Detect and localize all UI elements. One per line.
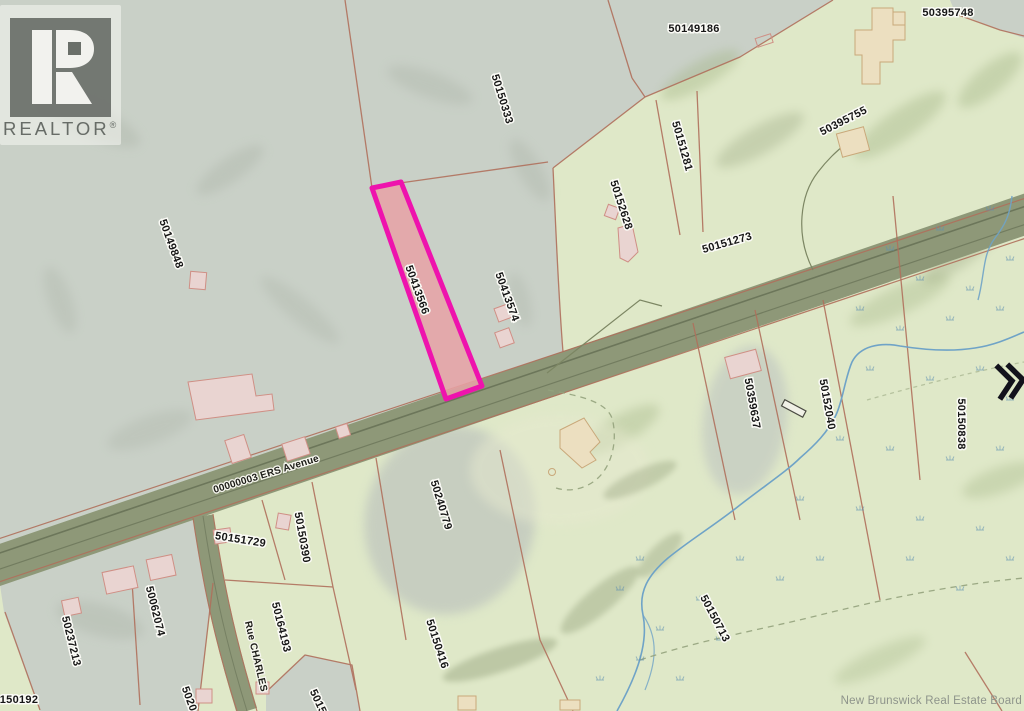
parcel-label-150192: 150192 xyxy=(0,694,38,706)
realtor-logo-icon xyxy=(10,18,111,117)
parcel-label-50150838: 50150838 xyxy=(955,398,967,449)
realtor-wordmark: REALTOR® xyxy=(3,118,121,140)
map-canvas[interactable]: 5015033350149186503957485039575550151281… xyxy=(0,0,1024,711)
map-image: 5015033350149186503957485039575550151281… xyxy=(0,0,1024,711)
parcel-label-50395748: 50395748 xyxy=(922,7,973,19)
realtor-watermark: REALTOR® xyxy=(0,5,121,145)
attribution-text: New Brunswick Real Estate Board xyxy=(841,695,1022,707)
parcel-label-50149186: 50149186 xyxy=(668,23,719,35)
registered-mark: ® xyxy=(110,120,117,130)
